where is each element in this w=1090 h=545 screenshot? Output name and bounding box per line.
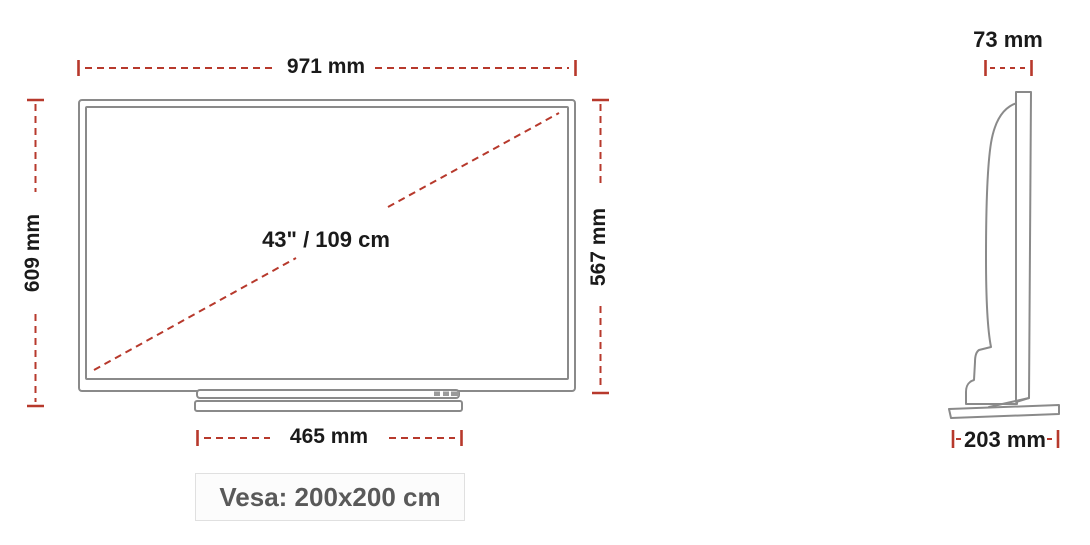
vesa-mount-badge: Vesa: 200x200 cm [195,473,465,521]
height-right-dimension-label: 567 mm [587,208,611,286]
diagram-drawing [0,0,1090,545]
diagonal-size-label: 43" / 109 cm [262,227,390,253]
tv-stand-upper-bar [197,390,459,398]
height-left-dimension-label: 609 mm [21,214,45,292]
depth-top-dimension-label: 73 mm [973,27,1043,53]
tv-side-view [949,92,1059,418]
vesa-mount-label: Vesa: 200x200 cm [219,482,440,513]
width-dimension-label: 971 mm [287,55,365,79]
tv-stand-base-bar [195,401,462,411]
tv-stand-buttons [434,392,459,397]
tv-side-base [949,405,1059,418]
tv-dimensions-diagram: 971 mm 609 mm 567 mm 43" / 109 cm 465 mm… [0,0,1090,545]
tv-side-back-profile [966,103,1017,404]
tv-side-panel [1016,92,1031,402]
depth-base-dimension-label: 203 mm [964,427,1046,453]
tv-front-view [79,100,575,411]
depth-top-dimension-line [986,60,1032,76]
stand-width-dimension-label: 465 mm [290,425,368,449]
